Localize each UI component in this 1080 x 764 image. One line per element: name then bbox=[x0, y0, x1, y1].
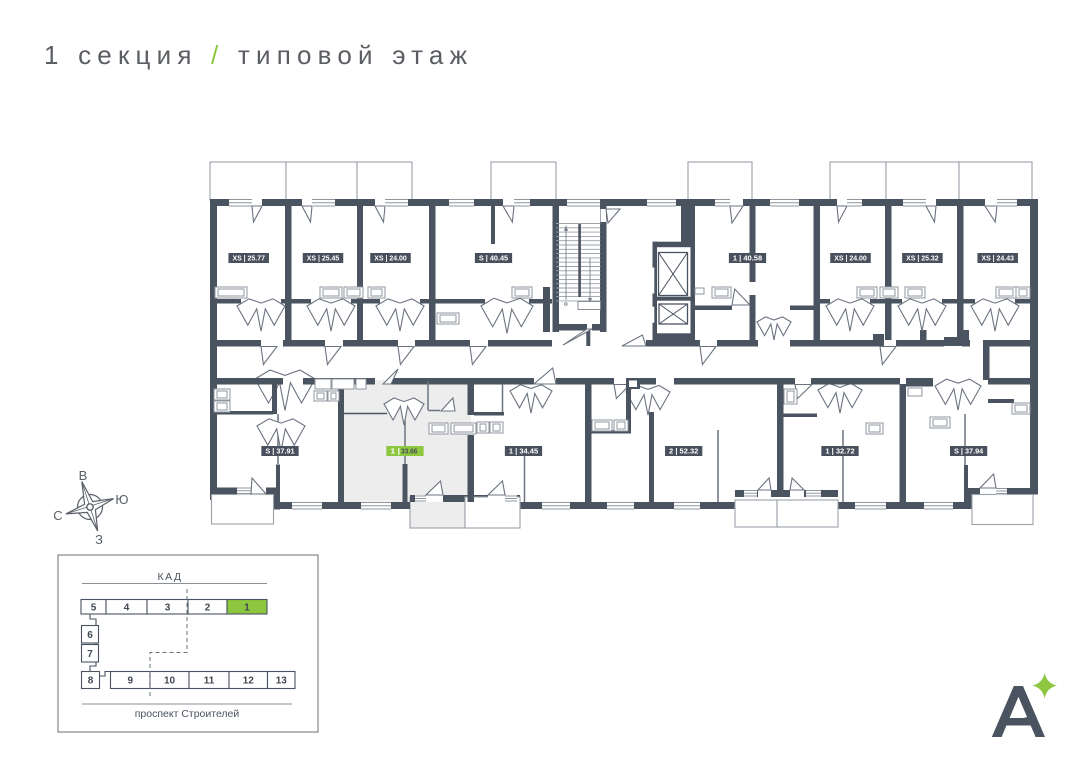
svg-text:проспект Строителей: проспект Строителей bbox=[135, 708, 240, 720]
svg-text:9: 9 bbox=[127, 676, 133, 687]
svg-text:XS | 25.45: XS | 25.45 bbox=[307, 254, 340, 263]
svg-text:КАД: КАД bbox=[157, 571, 182, 583]
svg-text:XS | 24.43: XS | 24.43 bbox=[981, 254, 1014, 263]
svg-text:6: 6 bbox=[87, 630, 93, 641]
svg-text:С: С bbox=[53, 508, 62, 523]
svg-text:1 | 32.72: 1 | 32.72 bbox=[825, 447, 854, 456]
svg-text:XS | 25.77: XS | 25.77 bbox=[232, 254, 265, 263]
svg-text:В: В bbox=[79, 468, 88, 483]
svg-text:2 | 52.32: 2 | 52.32 bbox=[669, 447, 698, 456]
svg-text:XS | 24.00: XS | 24.00 bbox=[374, 254, 407, 263]
svg-text:8: 8 bbox=[88, 676, 94, 687]
svg-text:XS | 25.32: XS | 25.32 bbox=[906, 254, 939, 263]
svg-text:7: 7 bbox=[87, 649, 93, 660]
svg-text:13: 13 bbox=[276, 676, 288, 687]
svg-text:Ю: Ю bbox=[115, 492, 128, 507]
svg-text:З: З bbox=[95, 532, 103, 547]
svg-text:1: 1 bbox=[244, 602, 250, 613]
svg-text:11: 11 bbox=[204, 676, 215, 687]
svg-text:1 | 40.58: 1 | 40.58 bbox=[733, 254, 762, 263]
svg-text:12: 12 bbox=[243, 676, 255, 687]
svg-text:S | 37.91: S | 37.91 bbox=[265, 447, 294, 456]
svg-text:1 | 34.45: 1 | 34.45 bbox=[509, 447, 538, 456]
svg-text:4: 4 bbox=[124, 602, 130, 613]
svg-text:10: 10 bbox=[164, 676, 176, 687]
svg-text:33.66: 33.66 bbox=[401, 447, 417, 456]
svg-text:1 |: 1 | bbox=[390, 447, 400, 456]
svg-text:XS | 24.00: XS | 24.00 bbox=[834, 254, 867, 263]
svg-text:5: 5 bbox=[91, 602, 97, 613]
svg-text:2: 2 bbox=[205, 602, 211, 613]
svg-text:S | 40.45: S | 40.45 bbox=[479, 254, 508, 263]
svg-text:S | 37.94: S | 37.94 bbox=[954, 447, 984, 456]
svg-text:3: 3 bbox=[165, 602, 171, 613]
